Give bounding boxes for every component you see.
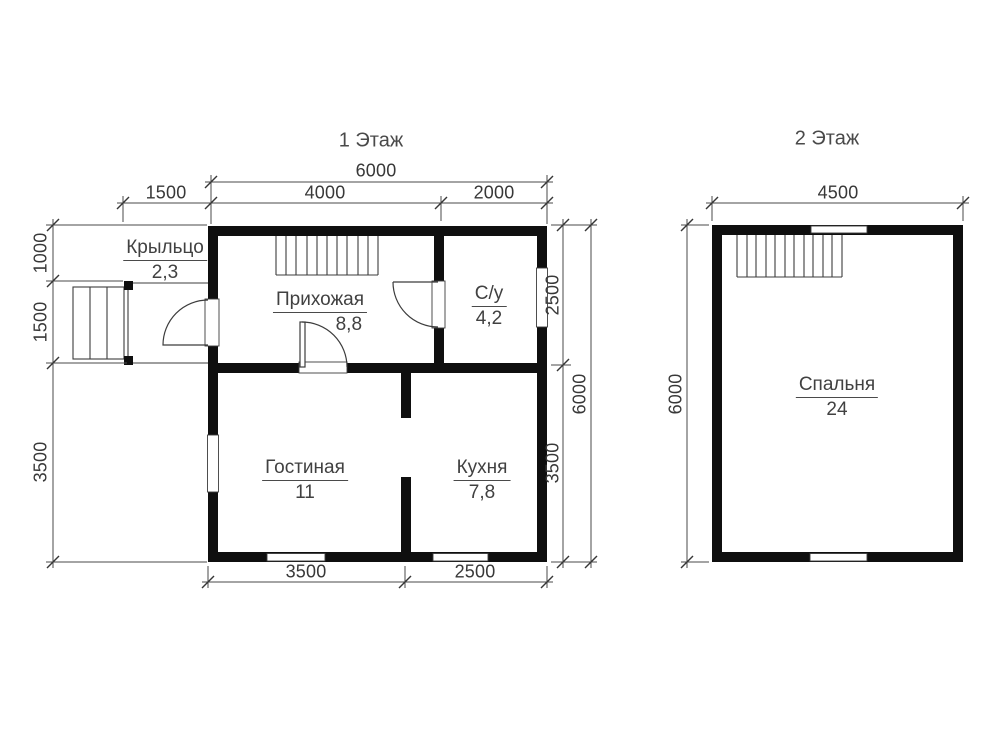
room-label-kitchen: Кухня 7,8 [454, 457, 511, 504]
dim-floor1-left-top: 1000 [31, 233, 52, 274]
bathroom-door-opening [432, 281, 445, 328]
porch-steps [73, 287, 124, 359]
room-label-bedroom: Спальня 24 [796, 374, 878, 421]
room-area: 24 [796, 398, 878, 421]
entry-door-swing [163, 300, 208, 345]
room-area: 2,3 [123, 261, 207, 284]
dim-floor1-right-top: 2500 [543, 275, 564, 316]
floor-plan-canvas: 1 Этаж 2 Этаж 6000 1500 4000 2000 1000 1… [0, 0, 1000, 750]
dim-floor1-left-mid: 1500 [31, 302, 52, 343]
living-room-window-bottom [267, 554, 325, 562]
porch-door-opening [205, 299, 219, 346]
room-label-hallway: Прихожая 8,8 [273, 289, 367, 336]
hall-door-opening [299, 362, 347, 373]
bathroom-door-swing [393, 282, 438, 327]
kitchen-passage-opening [399, 418, 413, 477]
room-area: 8,8 [273, 313, 367, 336]
room-area: 4,2 [472, 307, 507, 330]
dim-floor2-width-total: 4500 [818, 183, 859, 204]
dim-floor1-porch-width: 1500 [146, 183, 187, 204]
room-name: Кухня [454, 457, 511, 481]
dim-floor1-width-total: 6000 [356, 161, 397, 182]
room-name: Прихожая [273, 289, 367, 313]
floor1-title: 1 Этаж [339, 130, 404, 153]
room-name: Гостиная [262, 457, 348, 481]
room-label-bathroom: С/у 4,2 [472, 283, 507, 330]
floor1-stairs [276, 236, 378, 275]
floor2-title: 2 Этаж [795, 128, 860, 151]
dim-floor1-height-total: 6000 [570, 374, 591, 415]
kitchen-window-bottom [433, 554, 488, 562]
dim-floor1-bottom-left: 3500 [286, 562, 327, 583]
living-room-window-left [208, 435, 219, 492]
floor1-walls [208, 226, 547, 562]
dim-floor1-bottom-right: 2500 [455, 562, 496, 583]
porch-platform [73, 283, 208, 363]
room-area: 11 [262, 481, 348, 504]
room-name: С/у [472, 283, 507, 307]
dim-floor1-right-bottom: 3500 [543, 443, 564, 484]
room-name: Спальня [796, 374, 878, 398]
room-name: Крыльцо [123, 237, 207, 261]
dim-floor2-height-total: 6000 [666, 374, 687, 415]
dim-floor1-left-bottom: 3500 [31, 442, 52, 483]
bedroom-window-top [811, 226, 867, 233]
bedroom-window-bottom [810, 554, 867, 562]
room-label-porch: Крыльцо 2,3 [123, 237, 207, 284]
floor2-stairs [737, 235, 842, 277]
dim-floor1-width-bathroom: 2000 [474, 183, 515, 204]
room-label-living-room: Гостиная 11 [262, 457, 348, 504]
dim-floor1-width-hall: 4000 [305, 183, 346, 204]
room-area: 7,8 [454, 481, 511, 504]
